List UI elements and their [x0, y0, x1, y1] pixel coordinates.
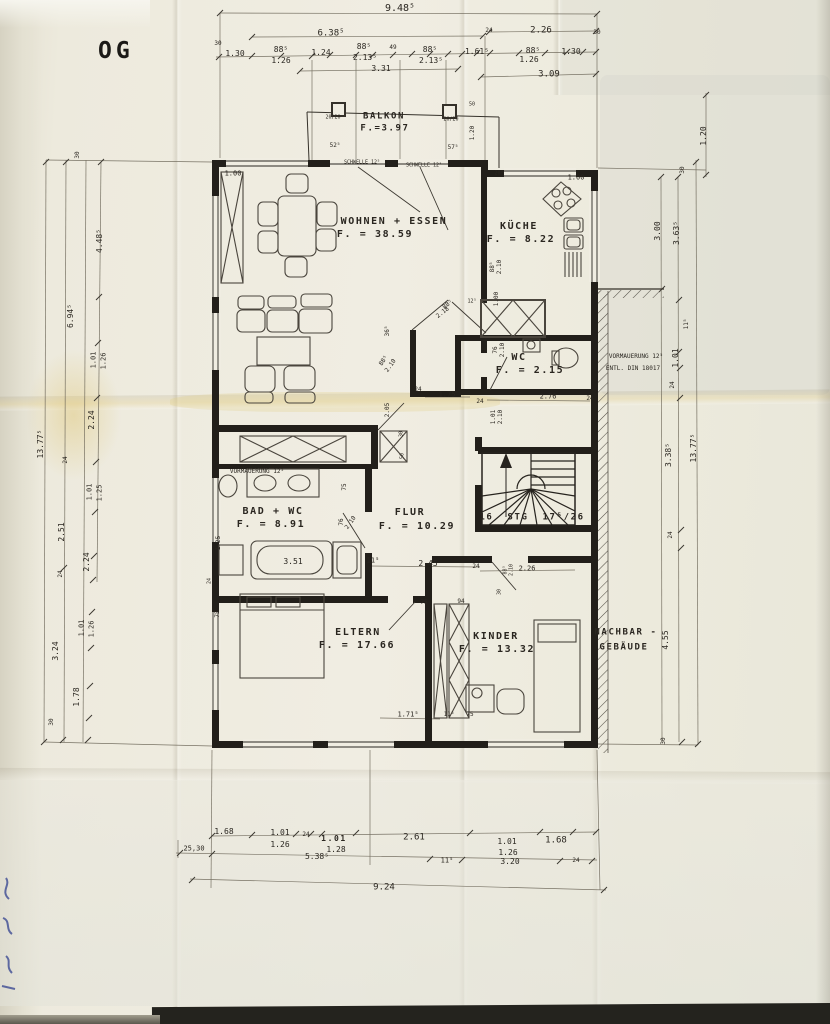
stove: [543, 182, 581, 216]
wardrobe: [221, 172, 243, 283]
bed: [534, 620, 580, 732]
chair: [497, 689, 524, 714]
neighbor-wall-hatching: [598, 289, 664, 753]
staircase: [482, 453, 575, 525]
bath-fixtures: [219, 469, 361, 579]
balcony-post: [443, 105, 456, 118]
kids-furniture: [466, 620, 580, 732]
sofa-group: [237, 294, 332, 403]
parents-bed: [240, 594, 324, 678]
toilet: [219, 475, 237, 497]
shelf: [219, 545, 243, 575]
walls: [212, 160, 598, 748]
kitchen-base-units: [481, 300, 545, 337]
wc-fixtures: [523, 339, 578, 368]
scanned-floor-plan-page: OG 9.48⁵6.38⁵2.262430301.3088⁵1.261.2488…: [0, 0, 830, 1024]
coffee-table: [257, 337, 310, 365]
dining-table-set: [258, 174, 337, 277]
floor-plan-drawing: [0, 0, 830, 1024]
page-title: OG: [98, 38, 134, 64]
handwritten-note: [2, 878, 15, 989]
vanity: [247, 469, 319, 497]
balcony-post: [332, 103, 345, 116]
balcony-outline: [307, 103, 499, 168]
kitchen-fixtures: [481, 182, 583, 337]
bathtub: [251, 541, 332, 579]
